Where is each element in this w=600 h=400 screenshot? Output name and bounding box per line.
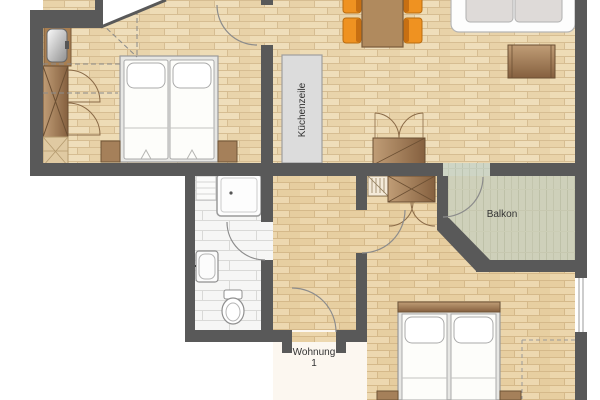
dining-table: [362, 0, 403, 47]
sofa: [451, 0, 575, 32]
balcony-threshold: [443, 163, 490, 176]
toilet: [222, 290, 244, 324]
luggage-rack: [43, 137, 68, 166]
balcony-label: Balkon: [487, 209, 518, 220]
dining-set: [343, 0, 422, 47]
door-threshold: [261, 5, 273, 45]
pillow: [454, 317, 493, 343]
wall-bathroom-right: [261, 260, 273, 330]
apartment-label: Wohnung: [293, 347, 336, 358]
wall-right-outer: [575, 0, 587, 400]
wall-balcony-left: [437, 176, 448, 222]
sofa-cushion: [515, 0, 562, 22]
pillow: [173, 63, 211, 88]
wall-left-outer: [30, 10, 43, 176]
door-reveal: [336, 342, 346, 353]
wall-balcony-bottom: [476, 260, 587, 272]
radiator: [368, 176, 388, 196]
bedside-bench: [377, 391, 398, 400]
wall-main-horizontal: [30, 163, 443, 176]
double-bed-2: [398, 302, 500, 400]
wall-bathroom-right: [261, 176, 273, 222]
apartment-number: 1: [311, 358, 317, 369]
wall-top-jog: [95, 0, 103, 28]
drain-icon: [229, 191, 232, 194]
wall-hall-right: [356, 253, 367, 342]
door-reveal: [282, 342, 292, 353]
wall-bedroom1-right: [261, 45, 273, 176]
bedside-bench: [101, 141, 120, 162]
washbasin: [44, 26, 71, 66]
bedside-bench: [218, 141, 237, 162]
wall-corridor-stub: [356, 176, 367, 210]
chair-back: [404, 0, 409, 12]
pillow: [405, 317, 444, 343]
chair-back: [356, 19, 361, 42]
chair-back: [404, 19, 409, 42]
door-threshold: [261, 222, 273, 260]
wall-stub: [261, 0, 273, 5]
wall-bathroom-left: [185, 176, 195, 342]
wall-main-horizontal: [490, 163, 587, 176]
sofa-cushion: [466, 0, 513, 22]
window-right: [575, 275, 587, 335]
wall-top-left: [30, 10, 97, 28]
shower: [217, 174, 261, 216]
headboard: [398, 302, 500, 312]
pillow: [127, 63, 165, 88]
faucet-icon: [65, 41, 69, 49]
wall-bottom: [185, 330, 292, 342]
kitchen-unit-label: Küchenzeile: [297, 82, 308, 137]
double-bed: [120, 56, 218, 162]
sideboard: [508, 45, 555, 78]
floor-plan: Küchenzeile: [0, 0, 600, 400]
shelf: [196, 176, 216, 200]
chair-back: [356, 0, 361, 12]
bedside-bench: [500, 391, 521, 400]
